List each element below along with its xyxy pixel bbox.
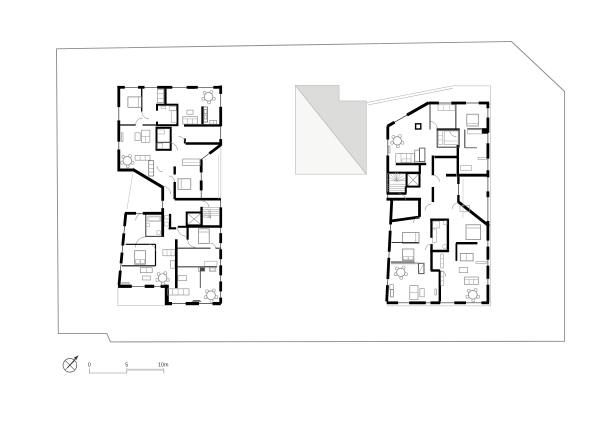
svg-text:0: 0 (88, 363, 91, 369)
svg-text:10m: 10m (158, 363, 169, 369)
svg-text:5: 5 (125, 363, 128, 369)
